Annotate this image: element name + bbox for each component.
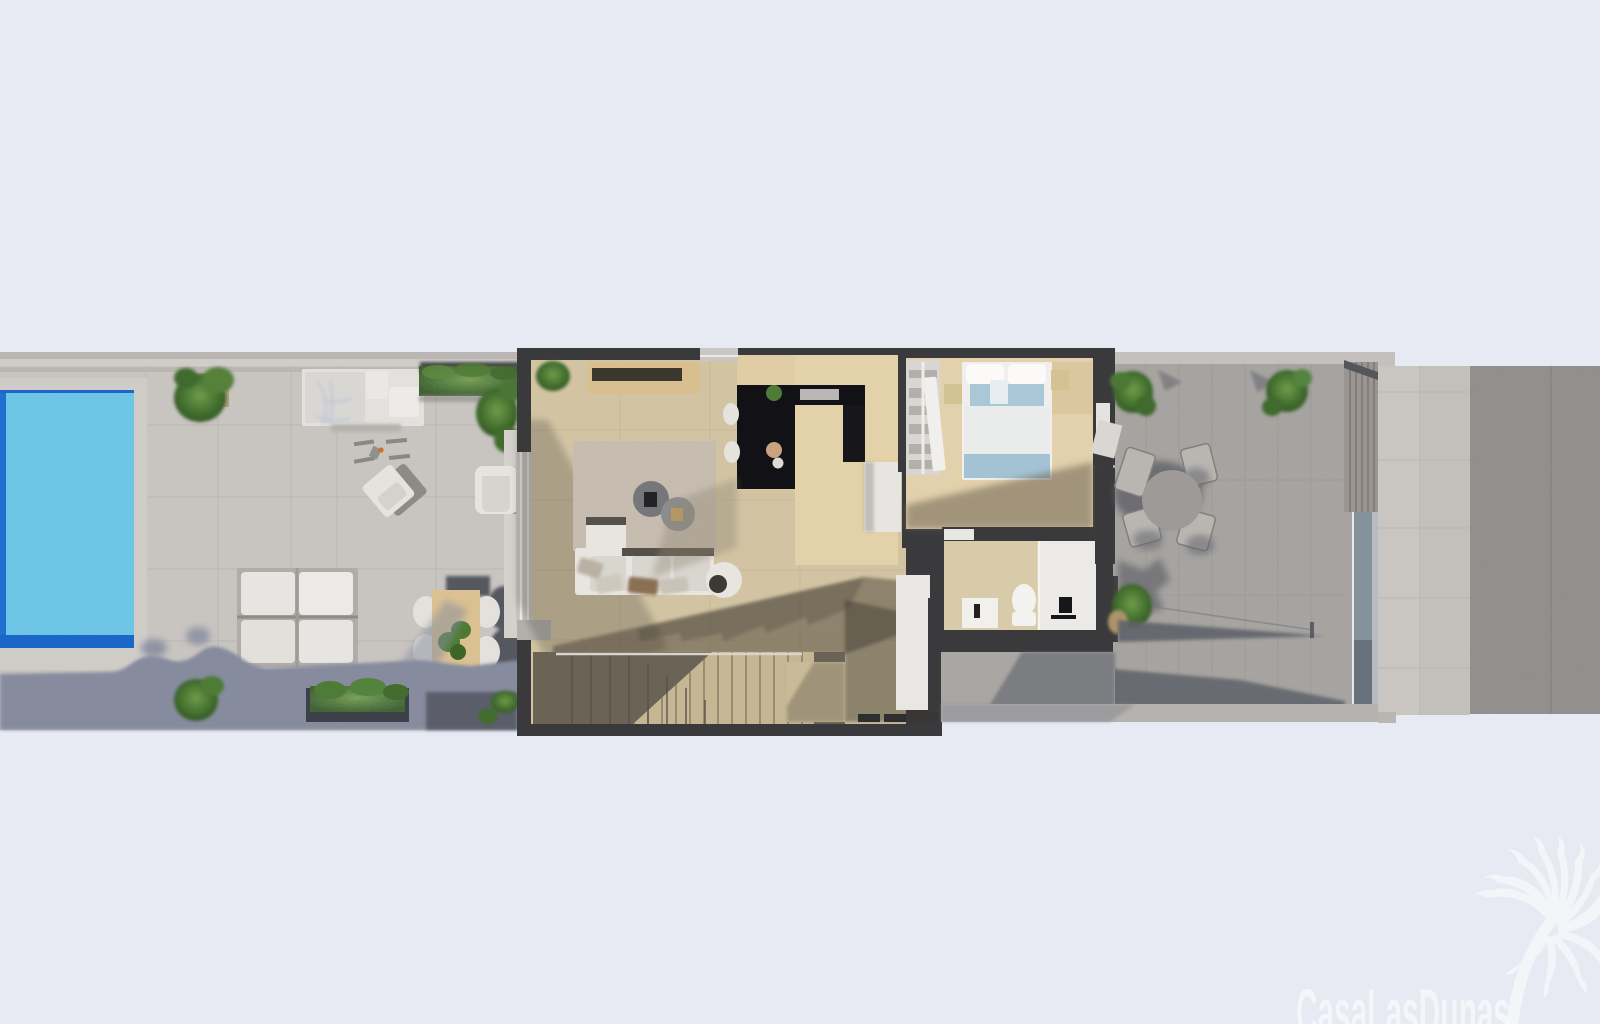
svg-text:CasaLasDunas: CasaLasDunas <box>1296 975 1510 1024</box>
